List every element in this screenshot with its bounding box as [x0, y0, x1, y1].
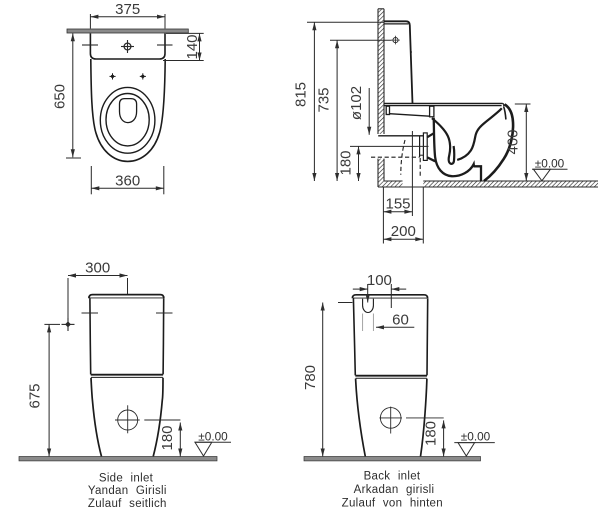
svg-text:ø102: ø102 — [348, 86, 365, 120]
svg-text:675: 675 — [27, 383, 44, 408]
svg-text:±0.00: ±0.00 — [535, 156, 565, 170]
svg-text:Zulauf von hinten: Zulauf von hinten — [342, 498, 443, 510]
svg-text:155: 155 — [385, 196, 410, 213]
svg-text:360: 360 — [115, 172, 140, 189]
svg-text:100: 100 — [367, 272, 392, 289]
svg-text:60: 60 — [392, 311, 409, 328]
svg-text:±0.00: ±0.00 — [198, 429, 228, 443]
svg-text:Arkadan girisli: Arkadan girisli — [354, 484, 435, 496]
svg-text:180: 180 — [159, 425, 176, 450]
svg-text:Back inlet: Back inlet — [364, 471, 421, 483]
svg-text:±0.00: ±0.00 — [461, 430, 491, 444]
svg-text:815: 815 — [293, 82, 310, 107]
svg-text:735: 735 — [316, 87, 333, 112]
svg-text:180: 180 — [338, 150, 355, 175]
svg-text:400: 400 — [505, 129, 522, 154]
svg-text:780: 780 — [302, 365, 319, 390]
svg-text:650: 650 — [52, 84, 69, 109]
svg-text:375: 375 — [115, 1, 140, 18]
svg-text:Zulauf seitlich: Zulauf seitlich — [88, 498, 167, 510]
svg-text:Side inlet: Side inlet — [99, 473, 154, 485]
svg-text:300: 300 — [85, 260, 110, 277]
svg-text:200: 200 — [391, 223, 416, 240]
svg-text:140: 140 — [184, 34, 201, 59]
svg-text:Yandan Girisli: Yandan Girisli — [88, 485, 167, 497]
svg-text:180: 180 — [423, 421, 440, 446]
